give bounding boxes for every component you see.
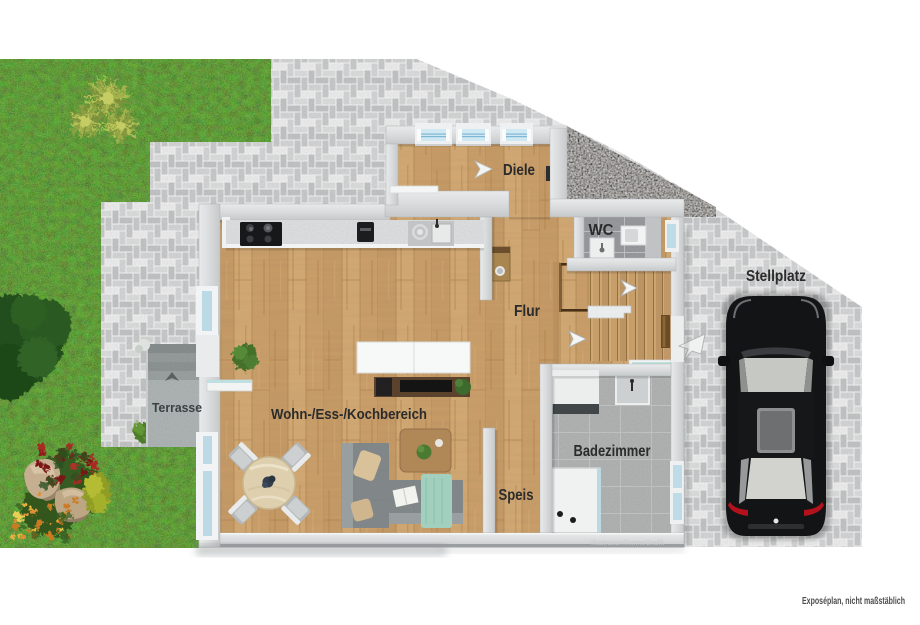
svg-text:Diele: Diele — [503, 162, 535, 179]
svg-text:Wohn-/Ess-/Kochbereich: Wohn-/Ess-/Kochbereich — [271, 407, 427, 423]
svg-text:WC: WC — [589, 222, 614, 239]
svg-text:Stellplatz: Stellplatz — [746, 268, 806, 285]
svg-text:Exposéplan, nicht maßstäblich: Exposéplan, nicht maßstäblich — [802, 595, 905, 607]
svg-text:Badezimmer: Badezimmer — [574, 443, 651, 460]
svg-text:Terrasse: Terrasse — [152, 401, 202, 415]
svg-text:Illustration©immoGrafik: Illustration©immoGrafik — [591, 538, 664, 547]
svg-text:Speis: Speis — [499, 487, 534, 504]
svg-text:Flur: Flur — [514, 303, 540, 320]
